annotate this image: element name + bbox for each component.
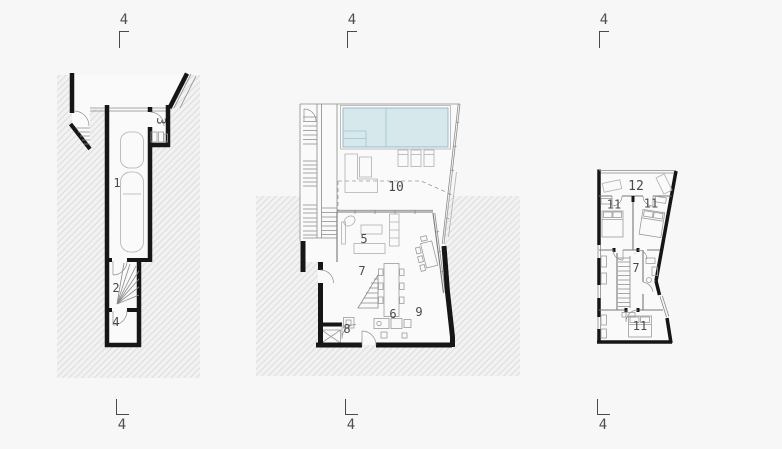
floor-plans-drawing: 1 2 3 4 bbox=[0, 0, 782, 449]
room-label: 11 bbox=[607, 198, 621, 212]
room-label: 1 bbox=[113, 176, 120, 190]
upper-level-plan: 7 11 11 11 12 bbox=[597, 170, 677, 344]
room-label: 11 bbox=[633, 319, 647, 333]
room-label: 10 bbox=[388, 180, 404, 195]
lower-level-plan: 1 2 3 4 bbox=[57, 73, 200, 378]
terrain-hatch bbox=[302, 262, 319, 376]
room-label: 4 bbox=[112, 315, 119, 329]
room-label: 8 bbox=[343, 322, 350, 336]
pool bbox=[341, 106, 451, 150]
room-label: 9 bbox=[415, 305, 422, 319]
room-label: 3 bbox=[154, 117, 168, 124]
main-level-plan: 5 6 7 8 9 10 bbox=[256, 104, 520, 376]
drawing-sheet: 4 4 4 4 4 4 bbox=[0, 0, 782, 449]
room-label: 11 bbox=[644, 197, 658, 211]
room-label: 7 bbox=[632, 261, 639, 275]
terrain-hatch bbox=[445, 196, 520, 376]
terrain-hatch bbox=[256, 196, 302, 376]
room-label: 12 bbox=[628, 179, 644, 194]
room-label: 5 bbox=[360, 232, 367, 246]
room-label: 7 bbox=[358, 264, 365, 278]
room-label: 2 bbox=[112, 281, 119, 295]
room-label: 6 bbox=[389, 307, 396, 321]
terrain-hatch bbox=[319, 345, 452, 376]
